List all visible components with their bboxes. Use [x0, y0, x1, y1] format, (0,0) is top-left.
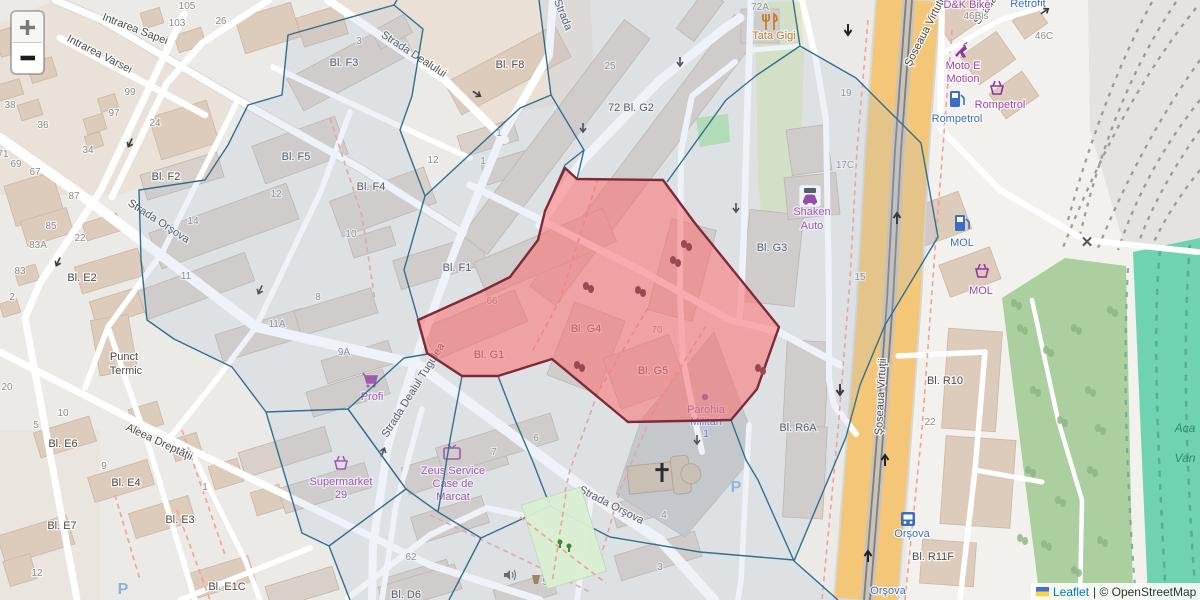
svg-text:Leaflet: Leaflet [1053, 585, 1090, 599]
svg-text:Moto E: Moto E [946, 60, 981, 72]
svg-text:36: 36 [37, 120, 49, 131]
svg-text:Termic: Termic [110, 365, 143, 377]
svg-text:Orşova: Orşova [894, 528, 930, 540]
svg-text:71: 71 [0, 149, 9, 160]
svg-text:Bl. E1C: Bl. E1C [208, 581, 245, 593]
svg-text:83: 83 [14, 266, 26, 277]
svg-text:69: 69 [10, 159, 22, 170]
svg-text:Van: Van [1175, 451, 1196, 465]
svg-text:103: 103 [169, 18, 186, 29]
svg-text:Rompetrol: Rompetrol [975, 99, 1026, 111]
svg-text:85: 85 [45, 221, 57, 232]
svg-text:Bl. E7: Bl. E7 [47, 520, 76, 532]
svg-text:Rompetrol: Rompetrol [932, 113, 983, 125]
svg-text:46C: 46C [1035, 31, 1053, 42]
svg-text:Bl. R11F: Bl. R11F [912, 551, 954, 563]
svg-text:9: 9 [101, 461, 107, 472]
svg-text:87: 87 [68, 191, 80, 202]
svg-text:MOL: MOL [950, 237, 974, 249]
svg-text:Orşova: Orşova [870, 585, 906, 597]
svg-text:12: 12 [427, 155, 439, 166]
svg-text:Aca: Aca [1174, 421, 1196, 435]
svg-text:Bl. E2: Bl. E2 [67, 272, 96, 284]
svg-text:MOL: MOL [969, 285, 993, 297]
svg-text:Bl. E4: Bl. E4 [111, 477, 140, 489]
svg-text:34: 34 [82, 145, 94, 156]
svg-text:P: P [118, 581, 129, 598]
svg-text:12: 12 [31, 568, 43, 579]
svg-text:✕: ✕ [1081, 234, 1094, 251]
svg-text:Bl. E3: Bl. E3 [165, 514, 194, 526]
svg-text:10: 10 [57, 408, 69, 419]
svg-text:67: 67 [29, 167, 41, 178]
svg-text:46Bis: 46Bis [963, 11, 988, 22]
svg-text:2: 2 [9, 292, 15, 303]
svg-text:20: 20 [1, 382, 13, 393]
svg-text:Punct: Punct [110, 351, 138, 363]
svg-text:22: 22 [74, 233, 86, 244]
svg-text:99: 99 [124, 87, 136, 98]
svg-text:83A: 83A [29, 240, 47, 251]
svg-text:97: 97 [108, 108, 120, 119]
svg-text:Bl. F2: Bl. F2 [152, 171, 181, 183]
svg-text:5: 5 [33, 420, 39, 431]
svg-text:24: 24 [149, 118, 161, 129]
svg-text:22: 22 [924, 417, 936, 428]
svg-text:38: 38 [4, 100, 16, 111]
svg-text:Bl. R10: Bl. R10 [927, 375, 963, 387]
svg-text:Bl. E6: Bl. E6 [48, 438, 77, 450]
svg-text:Motion: Motion [946, 73, 979, 85]
svg-text:| © OpenStreetMap: | © OpenStreetMap [1093, 585, 1197, 599]
svg-text:D&K Bike: D&K Bike [943, 0, 990, 11]
svg-text:26: 26 [215, 16, 227, 27]
svg-text:105: 105 [179, 1, 196, 12]
svg-text:1: 1 [202, 482, 208, 493]
svg-text:Bl. F8: Bl. F8 [496, 59, 525, 71]
